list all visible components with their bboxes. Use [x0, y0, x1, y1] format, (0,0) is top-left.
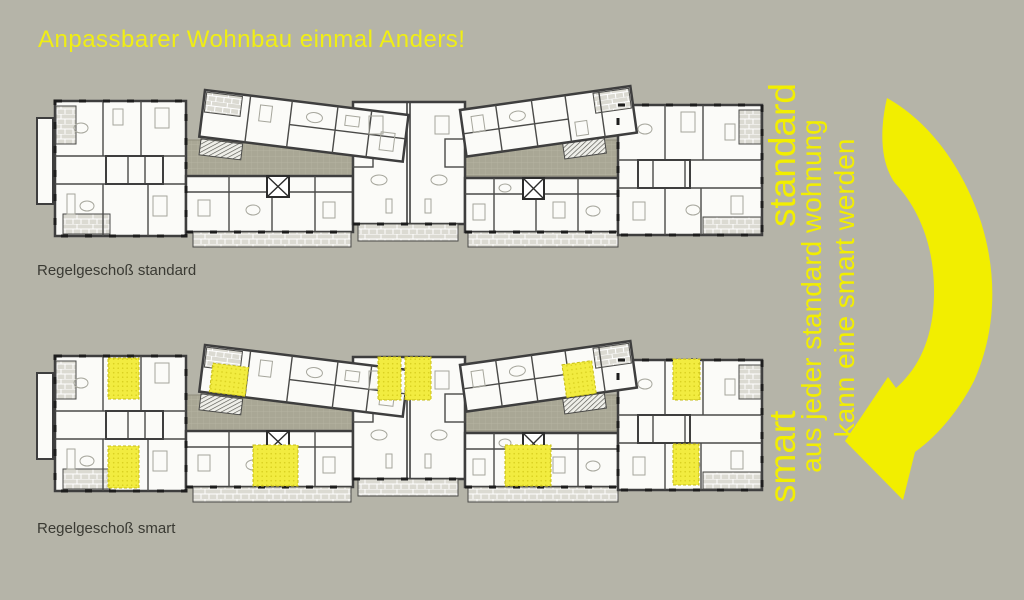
- slide-canvas: Anpassbarer Wohnbau einmal Anders! Regel…: [0, 0, 1024, 600]
- curved-arrow-down-left-icon: [0, 0, 1024, 600]
